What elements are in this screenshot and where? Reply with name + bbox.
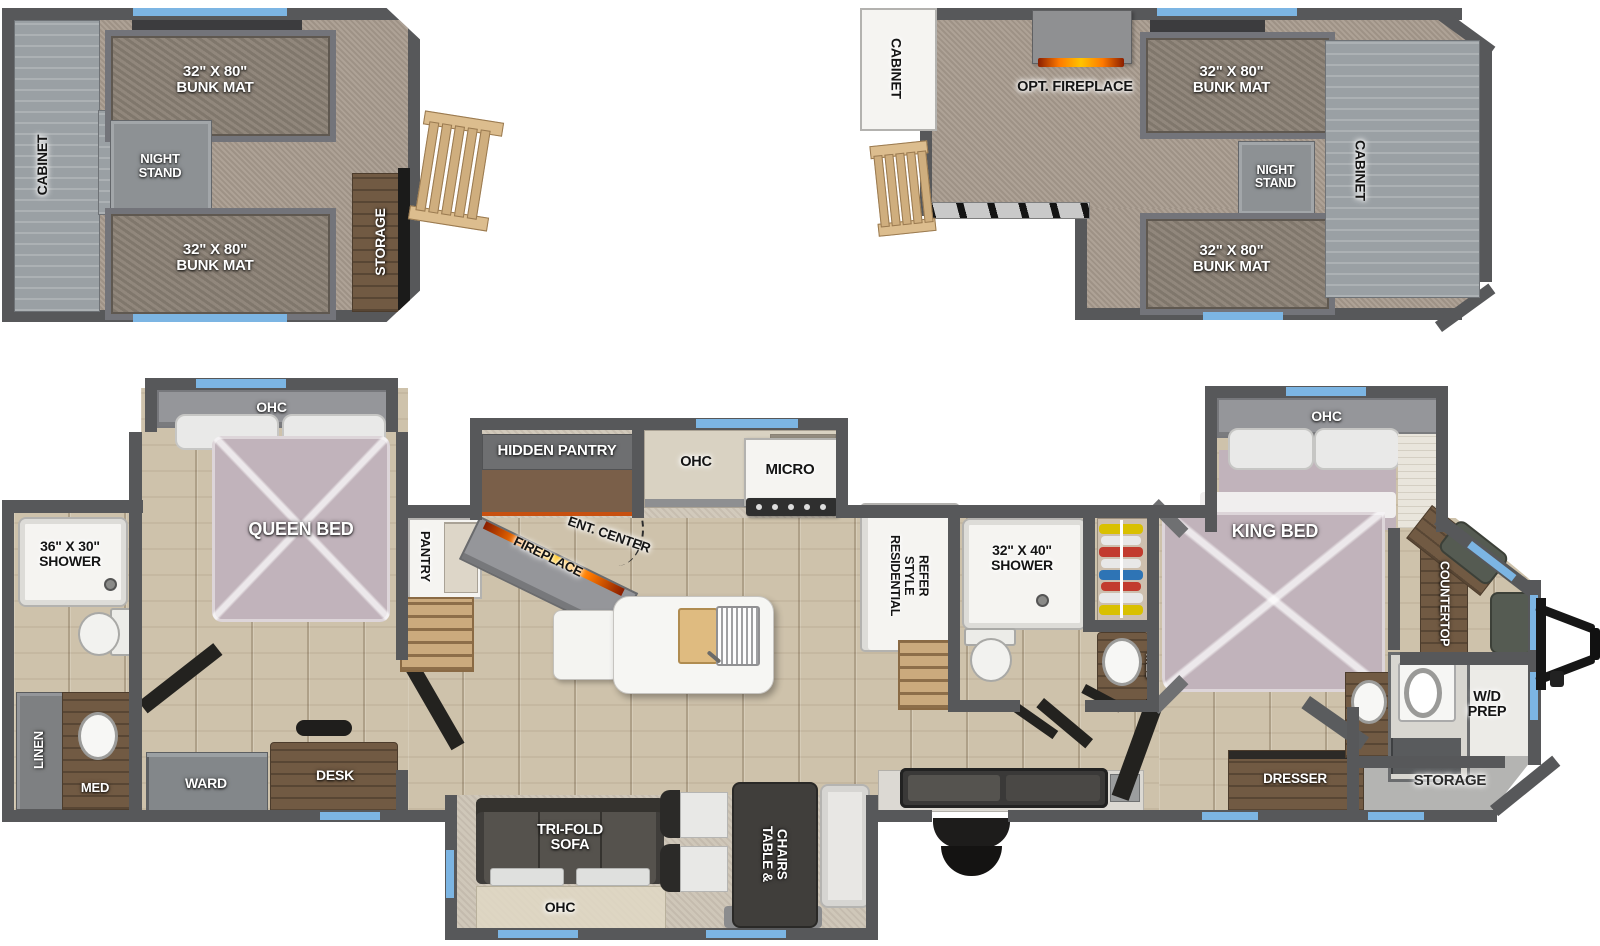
counter-sink-unit — [900, 768, 1108, 808]
dresser-label: DRESSER — [1228, 762, 1362, 796]
mid-med-sink — [1102, 638, 1142, 686]
storage-front-label: STORAGE — [1398, 768, 1502, 794]
loft-edge-steps — [928, 202, 1090, 219]
cabinet-left-label: CABINET — [881, 18, 911, 118]
island-sink — [716, 606, 760, 666]
king-window-2 — [1368, 812, 1424, 820]
hitch — [1536, 595, 1600, 695]
desk-chair — [296, 720, 352, 736]
chair-1-back — [660, 790, 680, 838]
loft-door — [398, 168, 410, 310]
chair-2-back — [660, 844, 680, 892]
sofa-window-2 — [706, 930, 786, 938]
pantry-label: PANTRY — [410, 520, 440, 593]
loft-left-ladder — [407, 106, 504, 235]
micro-label: MICRO — [744, 440, 836, 500]
loft-right-railing — [869, 140, 936, 238]
cabinet-label: CABINET — [33, 105, 51, 225]
table-chairs-label: TABLE & CHAIRS — [751, 798, 797, 910]
chair-2-seat — [680, 846, 728, 892]
night-stand-label: NIGHT STAND — [1238, 141, 1313, 213]
opt-fireplace-glow — [1038, 58, 1124, 67]
sofa-footrest-right — [576, 868, 650, 886]
rear-shower-label: 36" X 30" SHOWER — [18, 528, 122, 580]
bunk-bottom-label: 32" X 80" BUNK MAT — [110, 216, 320, 300]
washer-door — [1404, 668, 1442, 718]
king-pillow-left — [1228, 428, 1314, 470]
opt-fireplace-label: OPT. FIREPLACE — [995, 76, 1155, 100]
bunk-top-label: 32" X 80" BUNK MAT — [110, 38, 320, 122]
mid-shower-drain — [1036, 594, 1049, 607]
chair-1-seat — [680, 792, 728, 838]
mid-toilet-bowl — [970, 638, 1012, 682]
opt-fireplace-unit — [1032, 10, 1132, 64]
sofa-ohc-label: OHC — [476, 890, 644, 924]
bunk-bottom-label: 32" X 80" BUNK MAT — [1145, 220, 1318, 298]
wd-prep-label: W/D PREP — [1455, 682, 1519, 728]
bunk-top-label: 32" X 80" BUNK MAT — [1145, 40, 1318, 120]
ward-label: WARD — [146, 770, 266, 796]
loft-right-window-bottom — [1203, 312, 1283, 320]
pantry-stairs — [400, 597, 474, 672]
king-slide-window — [1286, 387, 1366, 396]
loft-left-plan: 32" X 80" BUNK MAT NIGHT STAND 32" X 80"… — [2, 8, 420, 322]
storage-label: STORAGE — [372, 182, 388, 302]
cabinet-right-label: CABINET — [1346, 115, 1374, 225]
sofa-window-1 — [498, 930, 578, 938]
queen-slide-window — [196, 379, 286, 388]
bedroom-window — [320, 812, 380, 820]
king-pillow-right — [1314, 428, 1400, 470]
loft-right-window-top — [1157, 8, 1297, 16]
bench-seat — [820, 784, 870, 908]
closet-rod — [1120, 520, 1123, 618]
kitchen-slide-window — [696, 419, 798, 428]
mid-shower-label: 32" X 40" SHOWER — [962, 532, 1082, 584]
sofa-label: TRI-FOLD SOFA — [476, 812, 664, 864]
loft-left-cabinet — [14, 20, 100, 312]
hidden-pantry-label: HIDDEN PANTRY — [482, 436, 632, 466]
loft-left-window-top — [133, 8, 287, 16]
sofa-side-window — [446, 850, 454, 898]
rv-floorplan: 32" X 80" BUNK MAT NIGHT STAND 32" X 80"… — [0, 0, 1600, 946]
king-window-1 — [1202, 812, 1258, 820]
refer-label: RESIDENTIAL STYLE REFER — [884, 514, 934, 638]
countertop-label: COUNTERTOP — [1434, 558, 1454, 650]
linen-label: LINEN — [31, 695, 47, 805]
queen-bed-label: QUEEN BED — [212, 515, 390, 545]
kitchen-ohc-label: OHC — [652, 448, 740, 478]
king-bed-label: KING BED — [1195, 516, 1355, 548]
rear-toilet-bowl — [78, 612, 120, 656]
hidden-pantry-shelves — [482, 466, 632, 516]
entry-step-1 — [933, 818, 1010, 848]
rear-med-sink — [78, 712, 118, 760]
island-extension — [553, 610, 619, 680]
loft-right-plan: CABINET OPT. FIREPLACE 32" X 80" BUNK MA… — [860, 8, 1508, 322]
night-stand-label: NIGHT STAND — [110, 120, 210, 212]
entry-step-2 — [941, 846, 1002, 876]
loft-left-window-bottom — [133, 314, 287, 322]
sofa-footrest-left — [490, 868, 564, 886]
rear-med-label: MED — [64, 776, 126, 800]
desk-label: DESK — [280, 762, 390, 788]
